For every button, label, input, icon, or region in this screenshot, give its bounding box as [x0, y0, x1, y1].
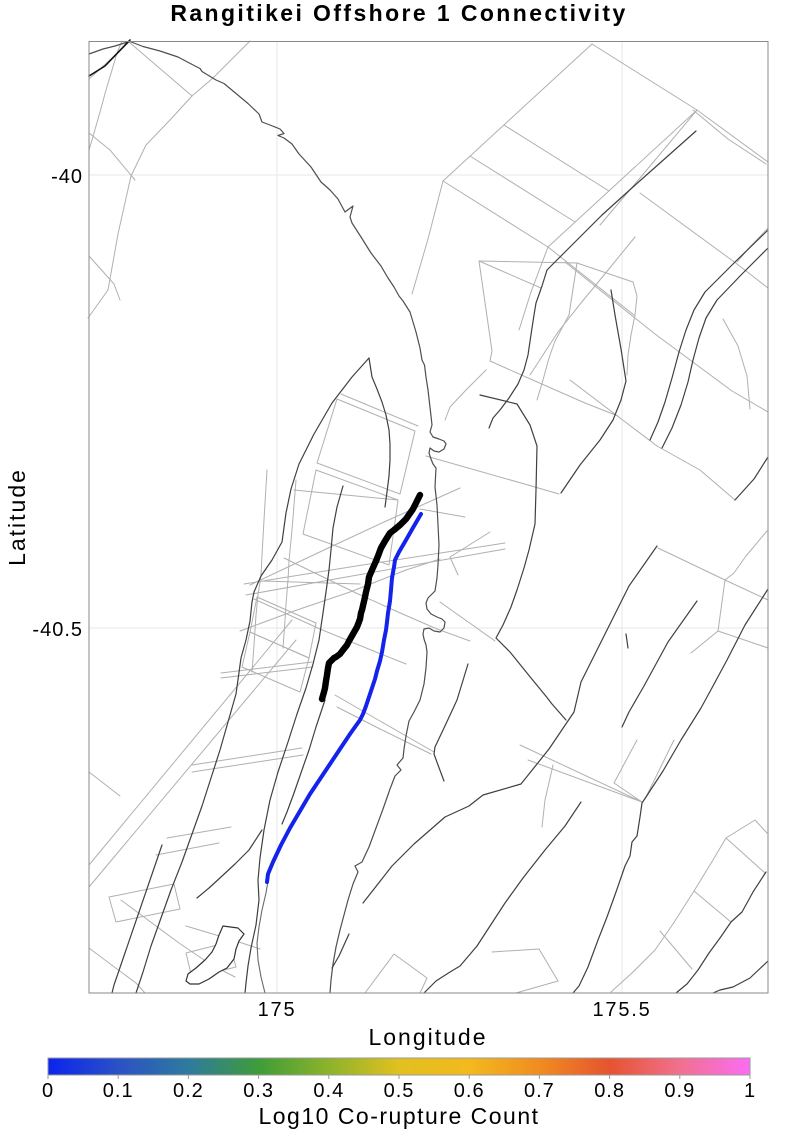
svg-text:Longitude: Longitude [368, 1024, 487, 1050]
svg-text:0.6: 0.6 [454, 1080, 485, 1102]
svg-text:0.4: 0.4 [313, 1080, 344, 1102]
svg-text:-40.5: -40.5 [32, 619, 83, 641]
svg-text:1: 1 [744, 1080, 756, 1102]
svg-text:0.1: 0.1 [103, 1080, 134, 1102]
svg-text:0.2: 0.2 [173, 1080, 204, 1102]
svg-text:-40: -40 [51, 166, 83, 188]
svg-text:0.7: 0.7 [524, 1080, 555, 1102]
svg-text:Log10 Co-rupture Count: Log10 Co-rupture Count [258, 1103, 539, 1129]
svg-text:0: 0 [42, 1080, 54, 1102]
svg-text:Latitude: Latitude [4, 468, 30, 566]
svg-text:175: 175 [258, 999, 297, 1021]
svg-text:0.8: 0.8 [594, 1080, 625, 1102]
svg-text:175.5: 175.5 [592, 999, 651, 1021]
svg-text:0.9: 0.9 [664, 1080, 695, 1102]
svg-text:0.3: 0.3 [243, 1080, 274, 1102]
svg-text:Rangitikei Offshore 1 Connecti: Rangitikei Offshore 1 Connectivity [170, 0, 627, 26]
svg-text:0.5: 0.5 [384, 1080, 415, 1102]
